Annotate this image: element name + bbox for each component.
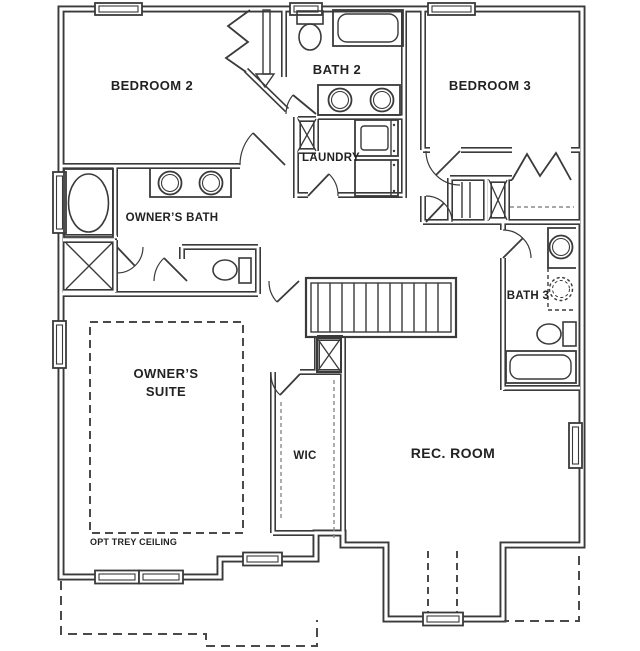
door-bath2 (286, 95, 316, 114)
room-label-bath3: BATH 3 (507, 290, 549, 302)
room-label-owners-bath: OWNER’S BATH (126, 212, 219, 224)
room-label-owners-suite-line2: SUITE (146, 384, 186, 399)
window-owners-suite-left (53, 321, 66, 368)
window-bath2-top (290, 3, 322, 15)
door-laundry (308, 174, 338, 196)
owners-tub (64, 169, 113, 237)
room-label-bedroom3: BEDROOM 3 (449, 78, 531, 93)
floor-plan-drawing: BEDROOM 2 BATH 2 BEDROOM 3 LAUNDRY OWNER… (0, 0, 640, 651)
bay-optional-walls (428, 551, 457, 612)
chase-stairs (317, 338, 341, 372)
labels: BEDROOM 2 BATH 2 BEDROOM 3 LAUNDRY OWNER… (90, 62, 549, 547)
washer (355, 160, 398, 196)
porch-outline-right (504, 556, 579, 621)
room-label-wic: WIC (293, 450, 316, 462)
room-label-laundry: LAUNDRY (302, 152, 360, 164)
bedroom3-closet (462, 153, 574, 218)
room-label-rec-room: REC. ROOM (411, 445, 496, 461)
door-owners-suite (269, 281, 299, 302)
door-bath3 (503, 230, 531, 258)
door-owners-toilet (154, 258, 187, 281)
owners-vanity (150, 169, 231, 197)
doors (117, 95, 531, 395)
shower-x (66, 243, 112, 289)
window-bedroom2-top (95, 3, 142, 15)
bath2-toilet (297, 11, 323, 50)
room-label-owners-suite-line1: OWNER’S (134, 366, 199, 381)
bath2-vanity (318, 85, 400, 115)
window-owners-suite-bottom-1 (95, 571, 139, 584)
bath2-tub (333, 10, 403, 46)
window-rec-room-right (569, 423, 582, 468)
room-label-bedroom2: BEDROOM 2 (111, 78, 193, 93)
stairs (306, 278, 456, 337)
door-owners-bath (117, 247, 143, 273)
trey-ceiling-outline (90, 322, 243, 533)
bath3-toilet (537, 322, 576, 346)
window-bay-bottom (423, 613, 463, 626)
dryer (355, 120, 398, 156)
bath3-tub (506, 351, 576, 383)
floor-plan: BEDROOM 2 BATH 2 BEDROOM 3 LAUNDRY OWNER… (0, 0, 640, 651)
window-nook-bottom (243, 553, 282, 566)
porch-outline-left (61, 581, 317, 646)
bath3-optional-vanity (548, 268, 576, 310)
window-owners-suite-bottom-2 (139, 571, 183, 584)
window-bedroom3-top (428, 3, 475, 15)
door-bedroom2 (240, 133, 285, 165)
bath3-vanity (548, 228, 576, 268)
note-trey-ceiling: OPT TREY CEILING (90, 537, 177, 547)
walls (61, 9, 582, 619)
room-label-bath2: BATH 2 (313, 62, 361, 77)
owners-toilet (213, 258, 251, 283)
